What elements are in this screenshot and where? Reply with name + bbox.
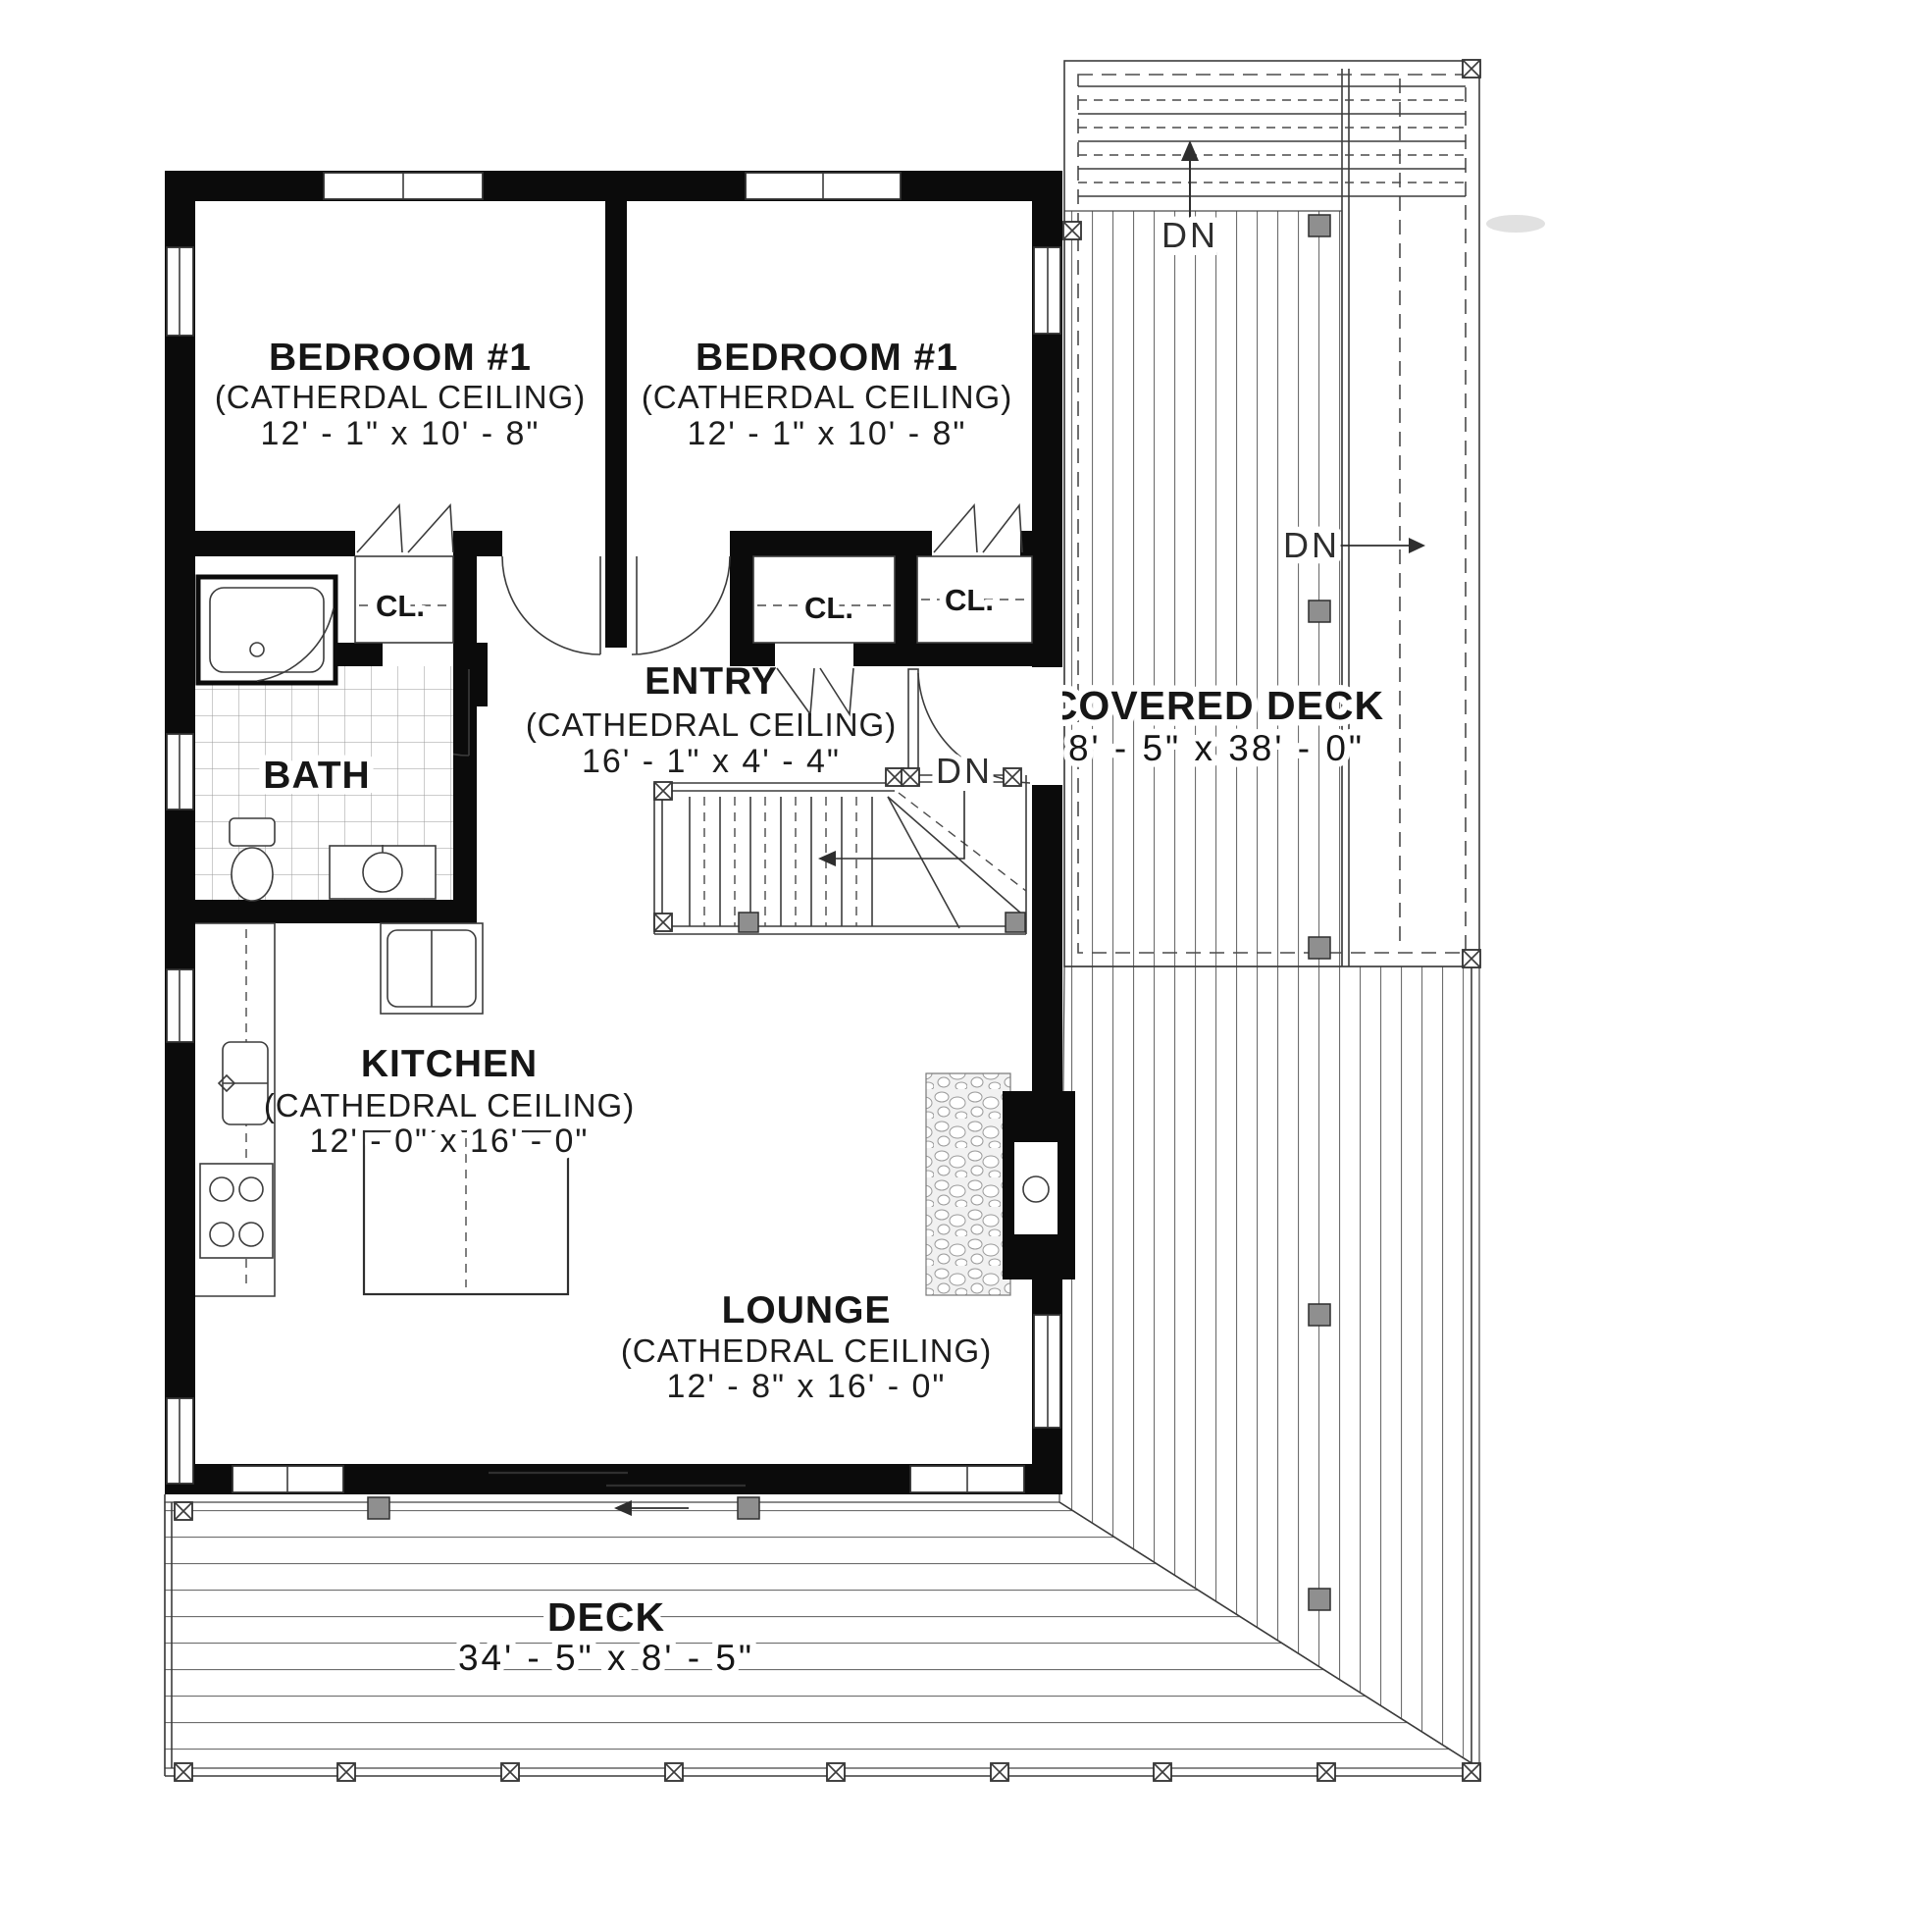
bifold-closet-left [357,505,453,552]
covered-deck: DN DN COVERED DECK 8' - 5" x 38' - 0" [1049,60,1480,1768]
deck-stairs-top [1078,86,1466,196]
wall-segment [730,531,932,556]
bedroom-left-label: BEDROOM #1 [269,337,532,379]
toilet [230,818,275,901]
window-kitchen-side [167,969,193,1042]
lounge-ceiling: (CATHEDRAL CEILING) [621,1332,992,1369]
door-bedroom-right [632,556,730,654]
deck-size: 34' - 5" x 8' - 5" [458,1638,754,1678]
wall-closet-left [730,531,753,666]
deck-post [1309,1589,1330,1610]
closet-left-label: CL. [376,589,425,623]
wall-bedroom-divider [605,201,627,648]
deck-post-xbox [1063,222,1081,239]
wall-bath-right [453,556,477,923]
door-bedroom-left [502,556,600,654]
window-bedroom-right-east [1034,247,1060,334]
bath-sink-vanity [330,845,436,899]
stairs-right-arrow-icon [1340,538,1425,553]
entry-size: 16' - 1" x 4' - 4" [582,743,841,780]
window-lounge-bottom-left [232,1466,343,1492]
kitchen-size: 12' - 0" x 16' - 0" [310,1123,590,1160]
bedroom-left-size: 12' - 1" x 10' - 8" [261,415,541,452]
deck-rail-xbox [175,1502,192,1520]
kitchen-ceiling: (CATHEDRAL CEILING) [264,1087,635,1123]
bedroom-right-ceiling: (CATHERDAL CEILING) [642,379,1012,415]
wall-segment [853,643,895,666]
wall-segment [195,531,355,556]
bifold-closet-right [934,505,1022,552]
deck-rail-xbox [991,1763,1008,1781]
deck-down-label-right: DN [1283,525,1340,565]
stair-post [739,913,758,932]
wall-segment [336,643,383,666]
deck-post-xbox [1463,950,1480,967]
fridge [381,923,483,1014]
stair-winders [888,793,1026,928]
stair-treads [690,797,872,926]
deck-post-xbox [1463,60,1480,78]
print-artifact [1486,215,1545,233]
floor-plan-page: DN DN COVERED DECK 8' - 5" x 38' - 0" [0,0,1909,1932]
entry-door-opening [1032,667,1062,785]
deck-post [738,1497,759,1519]
stair-newel-xbox [1004,768,1021,786]
lounge-size: 12' - 8" x 16' - 0" [667,1368,947,1405]
wall-top [165,171,1062,201]
window-bath-side [167,734,193,809]
floor-plan-drawing: DN DN COVERED DECK 8' - 5" x 38' - 0" [0,0,1909,1932]
wall-closet-divider [895,556,917,666]
wall-left [165,171,195,1494]
deck-rail-xbox [501,1763,519,1781]
stone-hearth [926,1073,1010,1295]
lounge-label: LOUNGE [722,1289,892,1332]
deck-rail-xbox [665,1763,683,1781]
deck-post [1309,937,1330,959]
entry-ceiling: (CATHEDRAL CEILING) [526,706,897,743]
kitchen: KITCHEN (CATHEDRAL CEILING) 12' - 0" x 1… [195,923,635,1296]
covered-deck-label: COVERED DECK [1049,683,1384,728]
bedroom-left-ceiling: (CATHERDAL CEILING) [215,379,586,415]
wall-right [1032,171,1062,1494]
firebox [1014,1142,1058,1234]
window-lounge-left [167,1398,193,1484]
bath: BATH [195,577,453,901]
window-bedroom-left-side [167,247,193,336]
deck-post [1309,1304,1330,1326]
kitchen-sink [219,1042,268,1124]
stove [200,1164,273,1258]
deck-rail-xbox [1463,1763,1480,1781]
fireplace [926,1073,1075,1295]
closet-middle-label: CL. [804,591,853,625]
entry-label: ENTRY [645,660,778,703]
covered-deck-planks [1064,211,1342,966]
deck-post [368,1497,389,1519]
deck-rail-xbox [827,1763,845,1781]
stair-newel-xbox [654,782,672,800]
bath-label: BATH [263,755,370,797]
kitchen-label: KITCHEN [361,1043,538,1085]
wall-bath-bottom [165,900,477,923]
deck-post [1309,215,1330,236]
deck-rail-xbox [1154,1763,1171,1781]
stair-down-label: DN [936,751,993,791]
bedroom-right-size: 12' - 1" x 10' - 8" [688,415,967,452]
deck-label: DECK [547,1594,665,1640]
window-lounge-bottom-right [910,1466,1024,1492]
window-lounge-east [1034,1315,1060,1428]
covered-deck-size: 8' - 5" x 38' - 0" [1068,728,1365,768]
stair-newel-xbox [902,768,919,786]
stair-post [1006,913,1025,932]
closet-right-label: CL. [945,583,994,617]
window-bedroom-right-top [746,173,901,199]
stair-newel-xbox [654,914,672,931]
window-bedroom-left-top [324,173,483,199]
bedroom-right-label: BEDROOM #1 [696,337,958,379]
deck-rail-xbox [175,1763,192,1781]
deck-rail-xbox [337,1763,355,1781]
deck-rail-xbox [1317,1763,1335,1781]
deck-down-label-top: DN [1161,215,1218,255]
shower [198,577,335,683]
wall-segment [453,531,502,556]
deck-post [1309,600,1330,622]
